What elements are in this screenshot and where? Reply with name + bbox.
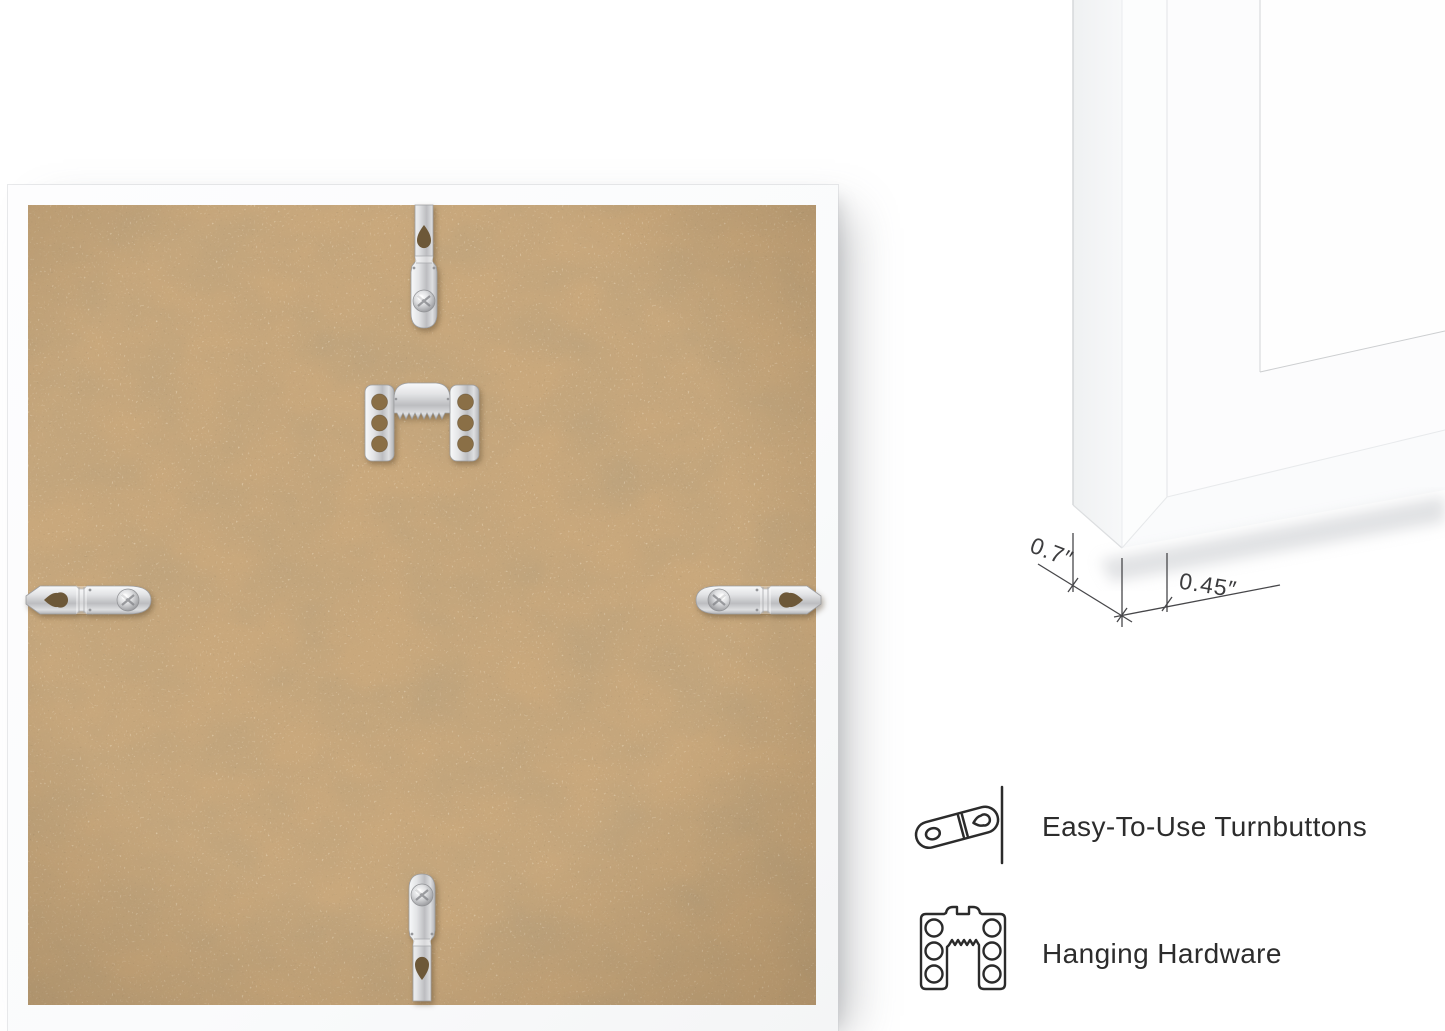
turnbutton-icon [913,783,1013,869]
frame-back-view [8,185,838,1031]
feature-label-hanging-hardware: Hanging Hardware [1042,938,1282,970]
turnbutton-hardware-top [402,199,446,333]
feature-label-turnbuttons: Easy-To-Use Turnbuttons [1042,811,1367,843]
hanging-hardware-icon [913,903,1013,991]
sawtooth-hanger-hardware [363,377,481,465]
frame-front-face [1122,0,1167,548]
frame-side-face [1073,0,1122,548]
artwork-area [1260,0,1445,372]
turnbutton-hardware-bottom [400,869,444,1005]
turnbutton-hardware-left [24,581,156,619]
turnbutton-hardware-right [691,581,823,619]
face-dimension-label: 0.45″ [1178,568,1239,603]
depth-dimension-label: 0.7″ [1030,532,1077,572]
frame-corner-detail: 0.7″ 0.45″ [1030,0,1445,655]
product-infographic: 0.7″ 0.45″ Easy-To-Use Turnbuttons [0,0,1445,1031]
